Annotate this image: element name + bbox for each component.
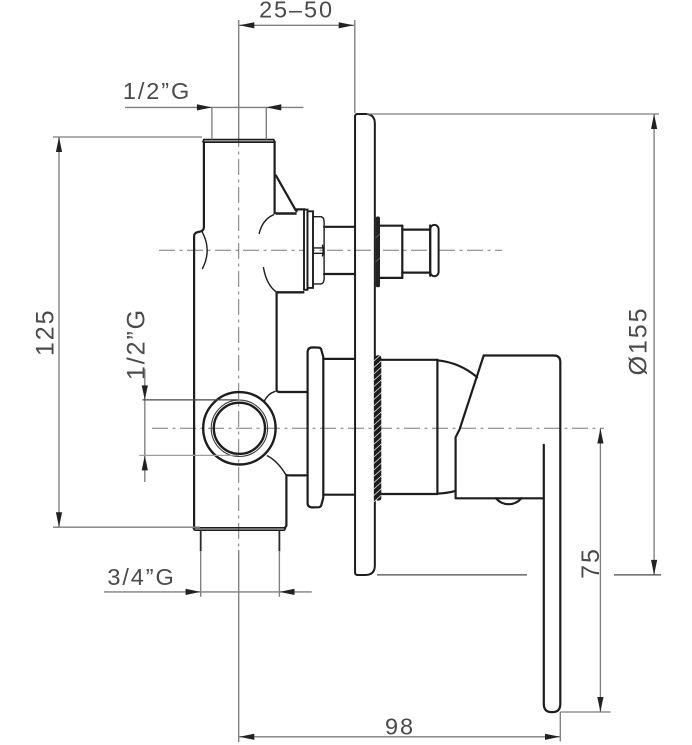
svg-text:125: 125 [31, 309, 59, 356]
svg-text:98: 98 [385, 714, 415, 740]
svg-text:1/2”G: 1/2”G [123, 78, 191, 104]
svg-text:3/4”G: 3/4”G [107, 564, 175, 590]
svg-text:25–50: 25–50 [259, 0, 334, 22]
svg-text:1/2”G: 1/2”G [123, 308, 151, 380]
svg-text:75: 75 [577, 547, 605, 579]
svg-text:Ø155: Ø155 [625, 307, 653, 376]
